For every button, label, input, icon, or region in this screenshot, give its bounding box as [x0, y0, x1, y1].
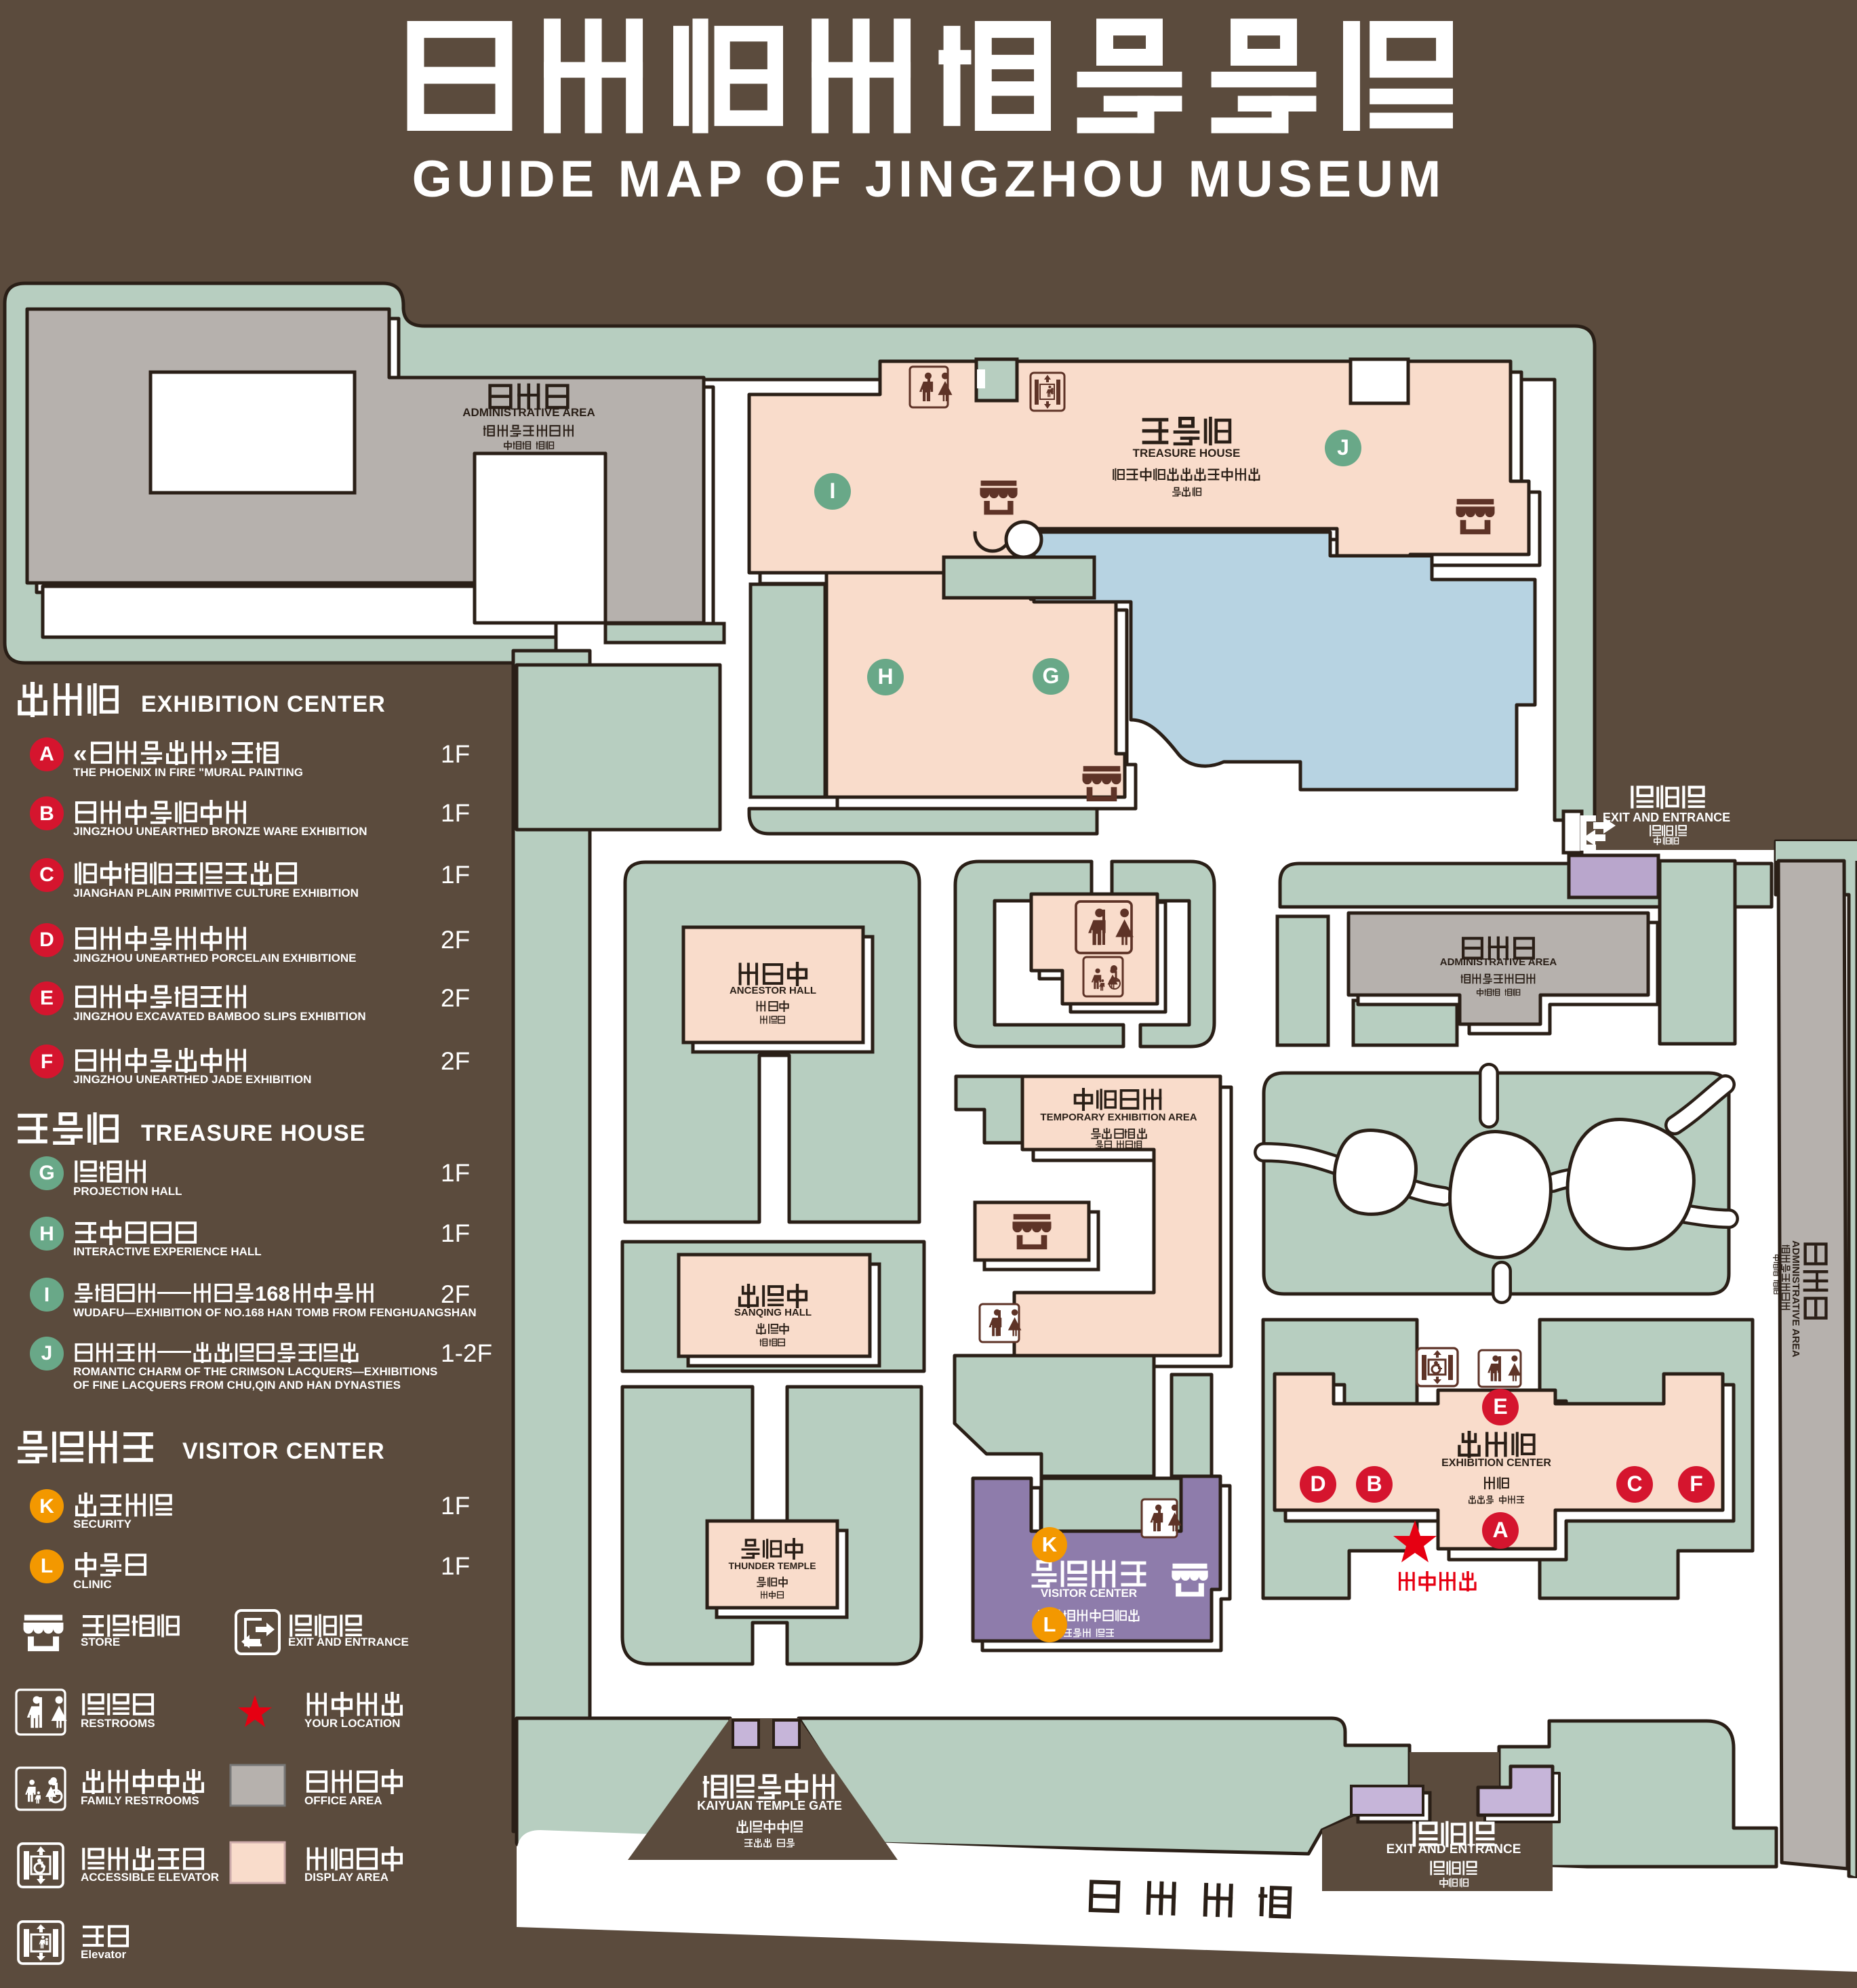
svg-text:EXIT AND ENTRANCE: EXIT AND ENTRANCE: [1603, 811, 1730, 824]
svg-text:A: A: [1492, 1518, 1508, 1542]
svg-text:VISITOR CENTER: VISITOR CENTER: [1041, 1587, 1137, 1600]
svg-text:G: G: [1043, 664, 1060, 688]
svg-text:C: C: [39, 864, 54, 886]
svg-text:G: G: [39, 1162, 54, 1184]
svg-text:FAMILY RESTROOMS: FAMILY RESTROOMS: [81, 1794, 199, 1807]
svg-text:A: A: [39, 743, 54, 765]
svg-text:F: F: [41, 1051, 53, 1073]
svg-text:1F: 1F: [441, 1159, 470, 1187]
svg-text:2F: 2F: [441, 1280, 470, 1308]
svg-text:I: I: [44, 1284, 49, 1306]
svg-text:H: H: [877, 664, 893, 689]
svg-text:1F: 1F: [441, 799, 470, 827]
svg-text:K: K: [39, 1495, 54, 1518]
svg-text:K: K: [1042, 1533, 1058, 1556]
svg-text:WUDAFU—EXHIBITION OF NO.168 HA: WUDAFU—EXHIBITION OF NO.168 HAN TOMB FRO…: [73, 1306, 477, 1319]
svg-text:B: B: [1366, 1472, 1382, 1496]
svg-text:J: J: [41, 1342, 53, 1364]
svg-text:2F: 2F: [441, 926, 470, 954]
svg-text:EXIT AND ENTRANCE: EXIT AND ENTRANCE: [1386, 1842, 1521, 1857]
svg-text:KAIYUAN TEMPLE GATE: KAIYUAN TEMPLE GATE: [697, 1799, 842, 1812]
svg-text:OF FINE LACQUERS FROM CHU,QIN: OF FINE LACQUERS FROM CHU,QIN AND HAN DY…: [73, 1379, 401, 1392]
svg-text:ACCESSIBLE ELEVATOR: ACCESSIBLE ELEVATOR: [81, 1871, 219, 1884]
svg-text:GUIDE MAP OF JINGZHOU MUSEUM: GUIDE MAP OF JINGZHOU MUSEUM: [412, 150, 1446, 208]
svg-text:1-2F: 1-2F: [441, 1339, 492, 1367]
svg-text:JIANGHAN PLAIN PRIMITIVE CULTU: JIANGHAN PLAIN PRIMITIVE CULTURE EXHIBIT…: [73, 887, 359, 899]
svg-text:CLINIC: CLINIC: [73, 1578, 112, 1591]
svg-text:H: H: [39, 1223, 54, 1245]
svg-text:1F: 1F: [441, 1552, 470, 1580]
svg-text:ADMINISTRATIVE AREA: ADMINISTRATIVE AREA: [1790, 1240, 1801, 1358]
svg-text:SANQING HALL: SANQING HALL: [734, 1307, 812, 1318]
svg-text:JINGZHOU UNEARTHED JADE EXHIBI: JINGZHOU UNEARTHED JADE EXHIBITION: [73, 1073, 311, 1086]
svg-text:2F: 2F: [441, 1047, 470, 1075]
svg-text:F: F: [1690, 1472, 1703, 1496]
svg-text:PROJECTION HALL: PROJECTION HALL: [73, 1185, 182, 1198]
svg-text:YOUR LOCATION: YOUR LOCATION: [304, 1717, 400, 1730]
svg-text:1F: 1F: [441, 861, 470, 889]
svg-text:1F: 1F: [441, 1492, 470, 1520]
svg-text:OFFICE AREA: OFFICE AREA: [304, 1794, 382, 1807]
svg-text:EXIT AND ENTRANCE: EXIT AND ENTRANCE: [288, 1636, 409, 1648]
svg-text:VISITOR CENTER: VISITOR CENTER: [182, 1438, 385, 1464]
svg-text:JINGZHOU UNEARTHED BRONZE WARE: JINGZHOU UNEARTHED BRONZE WARE EXHIBITIO…: [73, 825, 367, 838]
svg-text:J: J: [1337, 435, 1349, 460]
svg-text:L: L: [41, 1555, 53, 1577]
svg-text:TREASURE HOUSE: TREASURE HOUSE: [1133, 447, 1241, 460]
svg-text:D: D: [39, 929, 54, 951]
svg-text:»: »: [214, 739, 228, 767]
svg-text:I: I: [830, 479, 836, 503]
svg-text:1F: 1F: [441, 740, 470, 768]
svg-text:D: D: [1310, 1472, 1325, 1496]
svg-text:EXHIBITION CENTER: EXHIBITION CENTER: [1441, 1457, 1551, 1469]
svg-text:DISPLAY AREA: DISPLAY AREA: [304, 1871, 388, 1884]
svg-text:ADMINISTRATIVE AREA: ADMINISTRATIVE AREA: [462, 406, 595, 419]
svg-text:RESTROOMS: RESTROOMS: [81, 1717, 155, 1730]
svg-text:2F: 2F: [441, 984, 470, 1012]
svg-text:E: E: [1493, 1394, 1507, 1419]
svg-text:ANCESTOR HALL: ANCESTOR HALL: [730, 985, 816, 996]
svg-text:1F: 1F: [441, 1219, 470, 1247]
svg-text:THUNDER TEMPLE: THUNDER TEMPLE: [728, 1560, 816, 1571]
svg-text:L: L: [1043, 1612, 1056, 1636]
svg-text:STORE: STORE: [81, 1636, 120, 1648]
svg-text:TEMPORARY EXHIBITION AREA: TEMPORARY EXHIBITION AREA: [1040, 1112, 1197, 1123]
svg-text:C: C: [1626, 1472, 1642, 1496]
svg-text:E: E: [40, 987, 54, 1009]
svg-text:B: B: [39, 803, 54, 825]
svg-text:TREASURE HOUSE: TREASURE HOUSE: [141, 1120, 365, 1146]
svg-text:SECURITY: SECURITY: [73, 1518, 132, 1530]
svg-text:INTERACTIVE EXPERIENCE HALL: INTERACTIVE EXPERIENCE HALL: [73, 1245, 262, 1258]
svg-text:ADMINISTRATIVE AREA: ADMINISTRATIVE AREA: [1440, 956, 1557, 968]
svg-text:JINGZHOU EXCAVATED BAMBOO SLIP: JINGZHOU EXCAVATED BAMBOO SLIPS EXHIBITI…: [73, 1010, 366, 1023]
svg-text:JINGZHOU UNEARTHED PORCELAIN E: JINGZHOU UNEARTHED PORCELAIN EXHIBITIONE: [73, 952, 356, 965]
svg-text:ROMANTIC CHARM OF THE CRIMSON: ROMANTIC CHARM OF THE CRIMSON LACQUERS—E…: [73, 1365, 437, 1378]
svg-text:«: «: [73, 739, 87, 767]
svg-text:168: 168: [255, 1282, 290, 1305]
svg-text:EXHIBITION CENTER: EXHIBITION CENTER: [141, 691, 386, 717]
svg-text:Elevator: Elevator: [81, 1948, 126, 1961]
svg-text:THE PHOENIX IN FIRE "MURAL PAI: THE PHOENIX IN FIRE "MURAL PAINTING: [73, 766, 303, 779]
